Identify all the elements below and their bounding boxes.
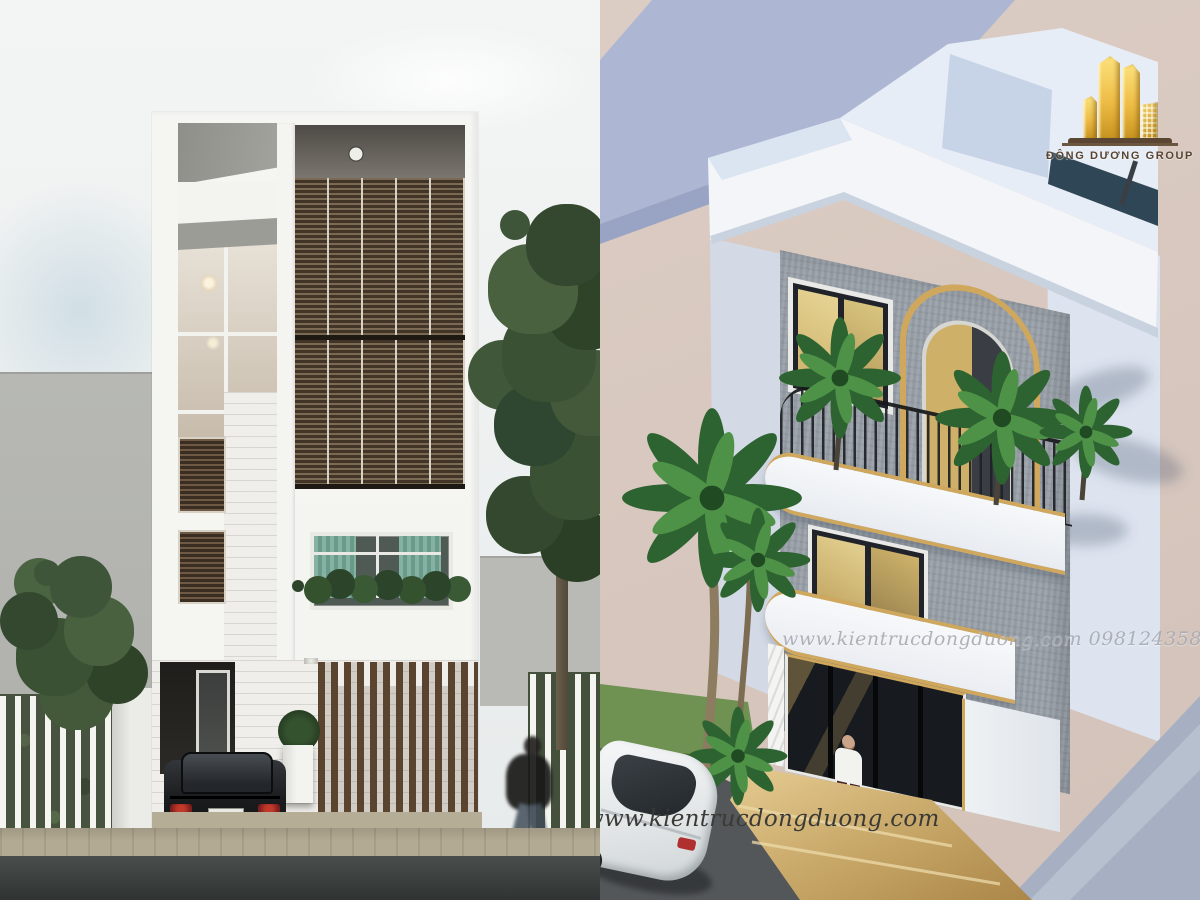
louver-bottom-rail bbox=[295, 484, 465, 489]
small-wood-louver bbox=[178, 530, 226, 604]
townhouse-facade bbox=[152, 112, 478, 854]
ceiling-lamp bbox=[200, 274, 218, 292]
left-tree-foliage bbox=[34, 560, 60, 586]
teal-curtain bbox=[399, 536, 441, 598]
planter-box-plants bbox=[292, 580, 304, 592]
balcony-ceiling-light bbox=[350, 514, 363, 527]
logo-label: ĐÔNG DƯƠNG GROUP bbox=[1040, 150, 1200, 162]
small-wood-louver bbox=[178, 437, 226, 513]
gate-slat-tops bbox=[318, 662, 478, 686]
wood-louver-screen bbox=[295, 178, 465, 489]
top-recess-soffit bbox=[295, 125, 465, 178]
teal-curtain bbox=[314, 536, 356, 598]
person-jacket bbox=[506, 754, 552, 810]
left-render-panel bbox=[0, 0, 600, 900]
window-mullion bbox=[178, 332, 277, 336]
window-mullion bbox=[376, 536, 379, 598]
dong-duong-group-logo: ĐÔNG DƯƠNG GROUP bbox=[1040, 38, 1200, 168]
logo-building-icon bbox=[1122, 64, 1140, 140]
balcony-palm-crown bbox=[779, 317, 901, 439]
watermark-center: www.kientrucdongduong.com 0981243588 bbox=[782, 628, 1200, 650]
asphalt-road bbox=[0, 856, 600, 900]
wall-light bbox=[304, 658, 318, 664]
logo-building-icon bbox=[1098, 56, 1120, 140]
upper-balcony-soffit bbox=[178, 123, 277, 185]
ceiling-lamp bbox=[206, 336, 220, 350]
tree-trunk bbox=[556, 520, 568, 750]
palm-crown bbox=[706, 508, 810, 612]
logo-building-icon bbox=[1083, 96, 1097, 140]
side-palm-crown bbox=[1040, 386, 1133, 479]
middle-window bbox=[310, 532, 453, 610]
logo-building-icon bbox=[1141, 102, 1158, 140]
two-townhouse-renders-collage: www.kientrucdongduong.com 0981243588 www… bbox=[0, 0, 1200, 900]
car-rear-window bbox=[181, 752, 273, 794]
left-slat-fence bbox=[0, 696, 118, 848]
person-head bbox=[524, 736, 541, 756]
facade-band bbox=[178, 182, 277, 224]
right-tree-foliage bbox=[500, 210, 530, 240]
logo-base-line bbox=[1062, 143, 1178, 146]
watermark-bottom: www.kientrucdongduong.com bbox=[600, 806, 940, 832]
car-trunk-line bbox=[170, 796, 280, 799]
right-render-panel: www.kientrucdongduong.com 0981243588 www… bbox=[600, 0, 1200, 900]
balcony-palm-crown bbox=[935, 351, 1068, 484]
recessed-ceiling-light bbox=[348, 146, 364, 162]
louver-mid-rail bbox=[295, 335, 465, 340]
